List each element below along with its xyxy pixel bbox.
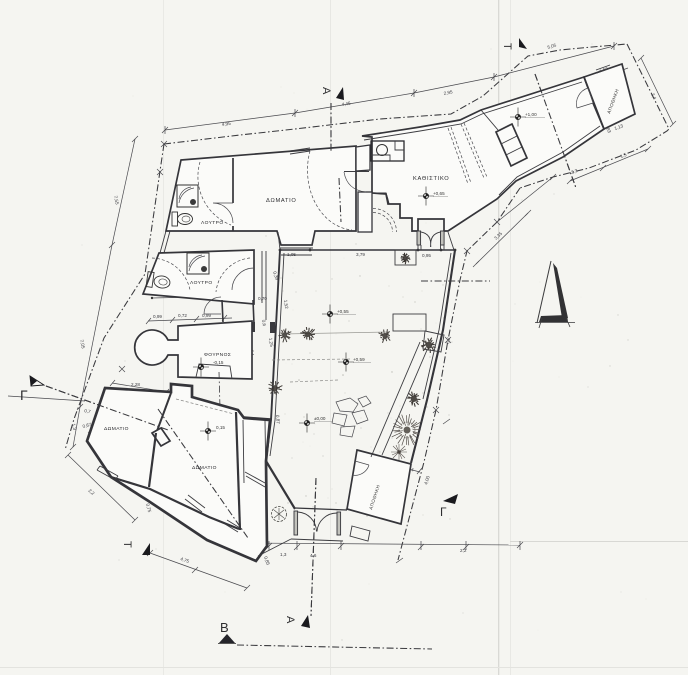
svg-text:+0,55: +0,55 [337, 309, 349, 314]
svg-text:ΔΩΜΑΤΙΟ: ΔΩΜΑΤΙΟ [192, 465, 217, 471]
svg-text:ΔΩΜΑΤΙΟ: ΔΩΜΑΤΙΟ [104, 426, 129, 432]
svg-text:0,99: 0,99 [153, 314, 162, 319]
svg-text:0,15: 0,15 [216, 425, 225, 430]
svg-text:0,72: 0,72 [178, 313, 187, 318]
svg-text:1,05: 1,05 [287, 252, 296, 257]
svg-text:Γ: Γ [20, 387, 28, 403]
svg-text:A: A [284, 616, 296, 624]
svg-text:2,2: 2,2 [460, 548, 467, 553]
svg-text:ΛΟΥΤΡΟ: ΛΟΥΤΡΟ [190, 280, 213, 286]
svg-text:2,28: 2,28 [131, 382, 140, 387]
svg-text:Γ: Γ [440, 505, 447, 519]
svg-text:1,3: 1,3 [280, 552, 287, 557]
svg-text:±0,00: ±0,00 [314, 416, 326, 421]
svg-text:+0,65: +0,65 [433, 191, 445, 196]
svg-text:ΛΟΥΤΡΟ: ΛΟΥΤΡΟ [201, 220, 224, 226]
svg-text:ΚΑΘΙΣΤΙΚΟ: ΚΑΘΙΣΤΙΚΟ [413, 176, 449, 182]
svg-text:ΔΩΜΑΤΙΟ: ΔΩΜΑΤΙΟ [266, 198, 297, 204]
svg-text:0,95: 0,95 [422, 253, 431, 258]
svg-text:0,87: 0,87 [275, 415, 281, 425]
svg-text:+1,00: +1,00 [525, 112, 537, 117]
svg-text:T: T [121, 541, 133, 548]
svg-text:+0,59: +0,59 [353, 357, 365, 362]
svg-text:T: T [501, 43, 513, 50]
svg-text:A: A [320, 87, 332, 95]
svg-text:3,79: 3,79 [356, 252, 365, 257]
svg-text:-0,15: -0,15 [213, 360, 224, 365]
svg-text:ΦΟΥΡΝΟΣ: ΦΟΥΡΝΟΣ [204, 352, 231, 358]
svg-text:B: B [220, 620, 229, 635]
